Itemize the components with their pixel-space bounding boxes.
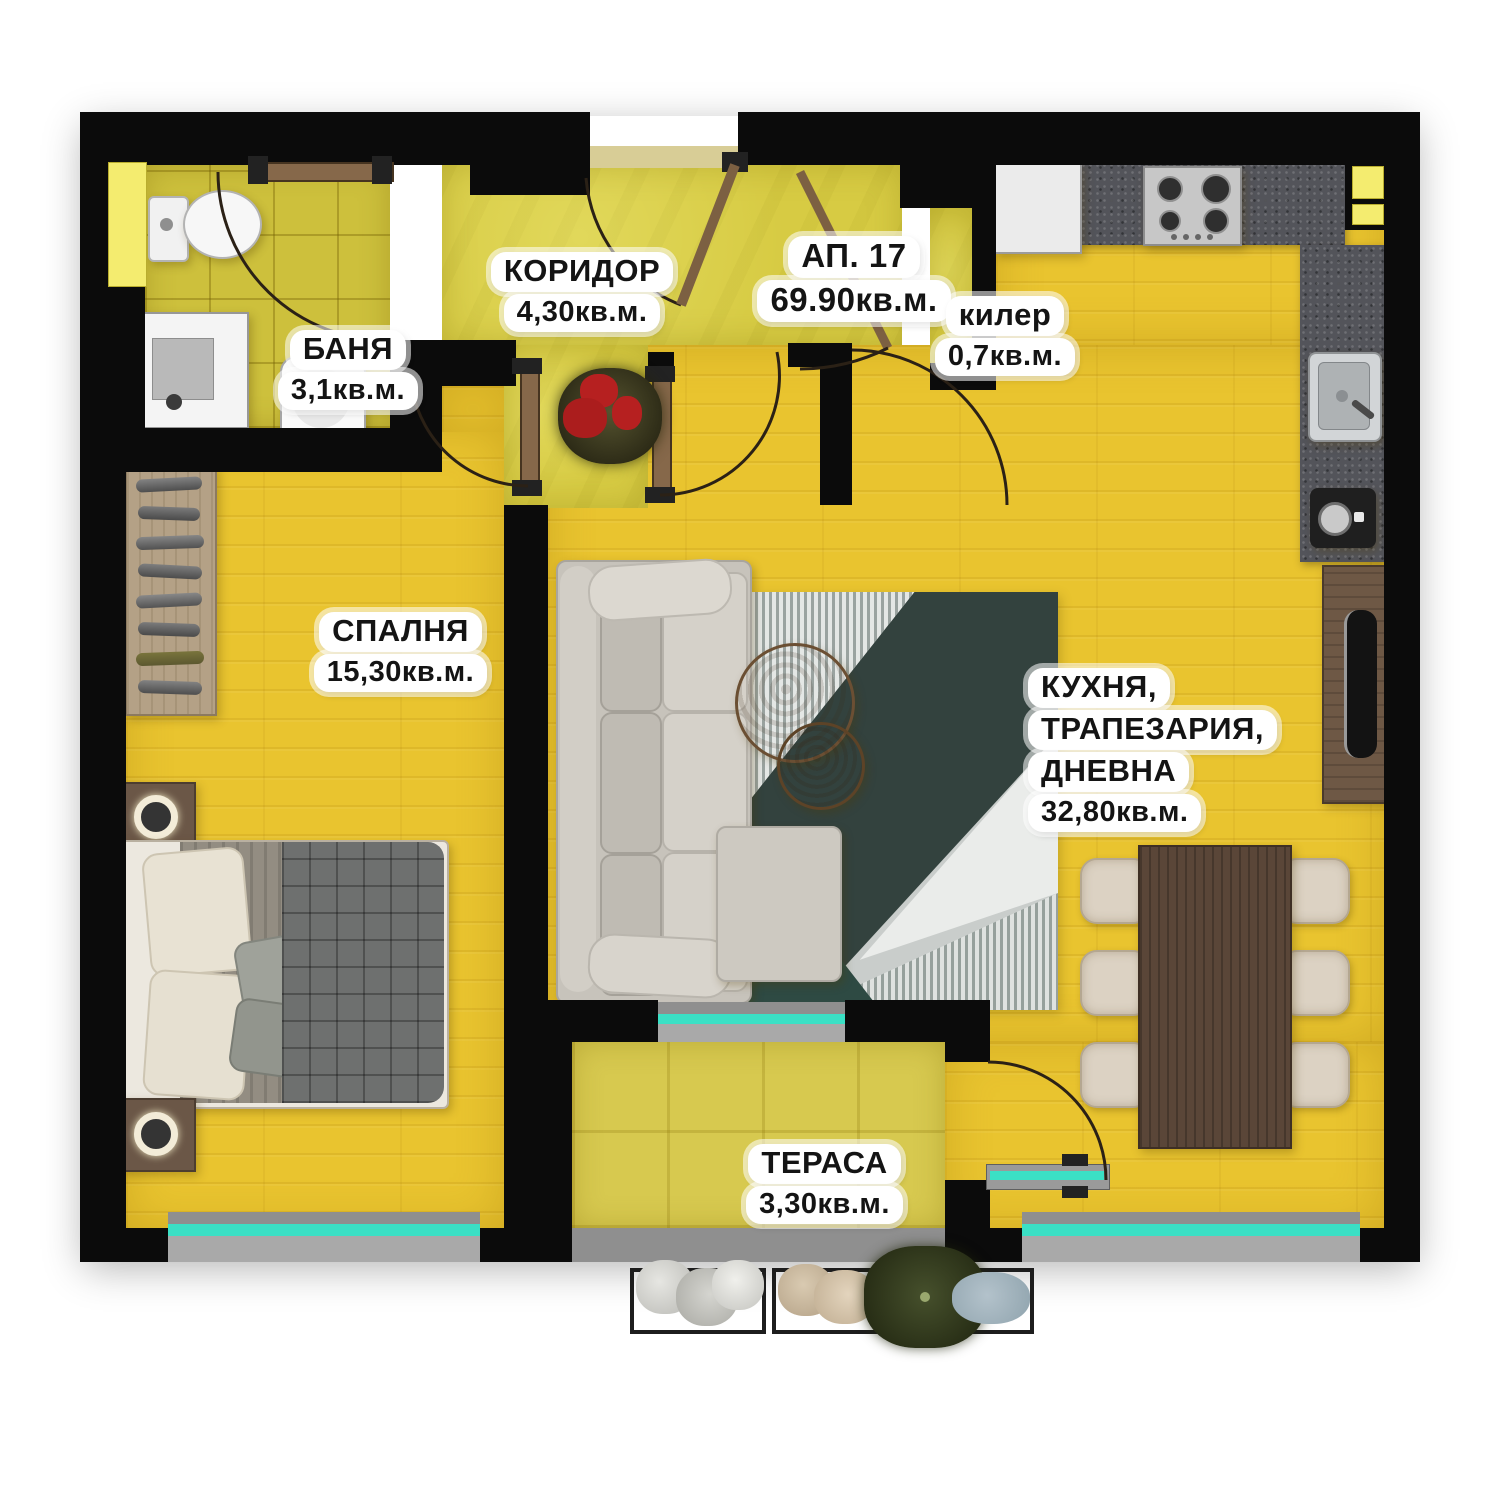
label-pantry: килер 0,7кв.м. xyxy=(930,296,1080,376)
sofa-armrest xyxy=(560,566,596,992)
kitchen-sink xyxy=(1308,352,1382,442)
door-hinge-icon xyxy=(1062,1186,1088,1198)
bed-quilt xyxy=(282,842,444,1103)
room-area: 0,7кв.м. xyxy=(935,338,1075,376)
wall-terrace-top-right xyxy=(845,1000,945,1042)
dining-table xyxy=(1138,845,1292,1149)
bedroom-window-ledge xyxy=(168,1236,480,1262)
door-hinge-icon xyxy=(512,480,542,496)
kitchen-corner-window xyxy=(1352,166,1384,199)
stove-knob-icon xyxy=(1183,234,1189,240)
stove-knob-icon xyxy=(1207,234,1213,240)
door-hinge-icon xyxy=(645,487,675,503)
door-hinge-icon xyxy=(512,358,542,374)
burner-icon xyxy=(1157,176,1183,202)
balcony-door-glass xyxy=(990,1171,1104,1180)
room-name-line: ТРАПЕЗАРИЯ, xyxy=(1028,710,1277,750)
window-plants-icon xyxy=(712,1260,764,1310)
wall-terrace-top-left xyxy=(572,1000,658,1042)
label-bedroom: СПАЛНЯ 15,30кв.м. xyxy=(288,612,513,692)
wall-top-pillar xyxy=(470,165,590,195)
plant-center-dot xyxy=(920,1292,930,1302)
kitchen-corner-window xyxy=(1352,204,1384,225)
wall-top-left xyxy=(88,112,590,165)
coffee-cup-icon xyxy=(1318,502,1352,536)
bedroom-door-leaf xyxy=(520,368,540,492)
burner-icon xyxy=(1201,174,1231,204)
coffee-machine xyxy=(1310,488,1376,548)
door-hinge-icon xyxy=(722,152,748,172)
door-hinge-icon xyxy=(645,366,675,382)
wall-bottom-b xyxy=(480,1228,575,1262)
shower-inner xyxy=(152,338,214,400)
apartment-area: 69.90кв.м. xyxy=(757,280,950,322)
entrance-threshold xyxy=(590,146,738,168)
room-name-line: ДНЕВНА xyxy=(1028,752,1189,792)
room-area: 4,30кв.м. xyxy=(504,294,661,332)
coffee-dot-icon xyxy=(1354,512,1364,522)
shower-drain-icon xyxy=(166,394,182,410)
gas-stove xyxy=(1143,166,1242,246)
label-terrace: ТЕРАСА 3,30кв.м. xyxy=(722,1144,927,1224)
sink-drain-icon xyxy=(1336,390,1348,402)
label-bathroom: БАНЯ 3,1кв.м. xyxy=(258,330,438,410)
room-name: СПАЛНЯ xyxy=(319,612,482,652)
fridge xyxy=(994,162,1082,254)
window-plants-icon xyxy=(952,1272,1030,1324)
stove-knob-icon xyxy=(1171,234,1177,240)
room-area: 3,1кв.м. xyxy=(278,372,418,410)
label-living: КУХНЯ, ТРАПЕЗАРИЯ, ДНЕВНА 32,80кв.м. xyxy=(1028,668,1298,832)
apartment-number: АП. 17 xyxy=(788,236,919,278)
sofa-ottoman xyxy=(716,826,842,982)
bedroom-floor-notch xyxy=(442,386,504,432)
sofa-bottom-pillow xyxy=(587,932,734,999)
label-corridor: КОРИДОР 4,30кв.м. xyxy=(452,252,712,332)
hanger-icon xyxy=(136,535,204,550)
room-name: килер xyxy=(946,296,1065,336)
wall-terrace-left xyxy=(545,1000,572,1228)
coffee-table-small xyxy=(777,722,865,810)
door-hinge-icon xyxy=(372,156,392,184)
wall-terrace-right-upper xyxy=(945,1000,990,1062)
terrace-window-ledge xyxy=(658,1024,845,1042)
hanger-icon xyxy=(138,680,202,695)
toilet-bowl xyxy=(183,190,262,259)
wall-vestibule-right xyxy=(820,343,852,505)
room-name: ТЕРАСА xyxy=(748,1144,900,1184)
label-apartment: АП. 17 69.90кв.м. xyxy=(764,236,944,322)
kitchen-window-glass xyxy=(1022,1224,1360,1236)
stove-knob-icon xyxy=(1195,234,1201,240)
wall-top-right xyxy=(738,112,1420,165)
bathroom-window xyxy=(108,162,147,287)
hanger-icon xyxy=(138,622,200,637)
hanger-icon xyxy=(136,651,204,666)
kitchen-window-ledge xyxy=(1022,1236,1360,1262)
nightstand-lamp-icon xyxy=(134,795,178,839)
burner-icon xyxy=(1159,210,1181,232)
room-area: 15,30кв.м. xyxy=(314,654,487,692)
door-hinge-icon xyxy=(248,156,268,184)
flower-red xyxy=(612,396,642,430)
hanger-icon xyxy=(138,506,200,521)
wall-left xyxy=(80,472,126,1262)
floor-plan: КОРИДОР 4,30кв.м. АП. 17 69.90кв.м. киле… xyxy=(0,0,1500,1500)
terrace-window-glass xyxy=(658,1014,845,1024)
wall-bathroom-bottom xyxy=(80,428,442,472)
wardrobe xyxy=(125,465,217,716)
door-hinge-icon xyxy=(1062,1154,1088,1166)
tv-icon xyxy=(1344,610,1377,758)
room-name: БАНЯ xyxy=(290,330,406,370)
wall-bottom-a xyxy=(80,1228,168,1262)
room-area: 3,30кв.м. xyxy=(746,1186,903,1224)
nightstand-lamp-icon xyxy=(134,1112,178,1156)
bedroom-window-sill xyxy=(168,1212,480,1224)
sofa-back-cushion xyxy=(600,712,662,854)
flower-red xyxy=(563,398,607,438)
wall-terrace-right-lower xyxy=(945,1180,990,1228)
toilet-flush-icon xyxy=(160,218,173,231)
room-name-line: КУХНЯ, xyxy=(1028,668,1170,708)
sofa-top-pillow xyxy=(586,557,734,623)
bedroom-window-glass xyxy=(168,1224,480,1236)
room-area: 32,80кв.м. xyxy=(1028,794,1201,832)
wall-right xyxy=(1384,112,1420,1262)
kitchen-window-sill xyxy=(1022,1212,1360,1224)
burner-icon xyxy=(1203,208,1229,234)
room-name: КОРИДОР xyxy=(491,252,673,292)
wall-bottom-d xyxy=(1360,1228,1420,1262)
terrace-window-sill xyxy=(658,1002,845,1014)
